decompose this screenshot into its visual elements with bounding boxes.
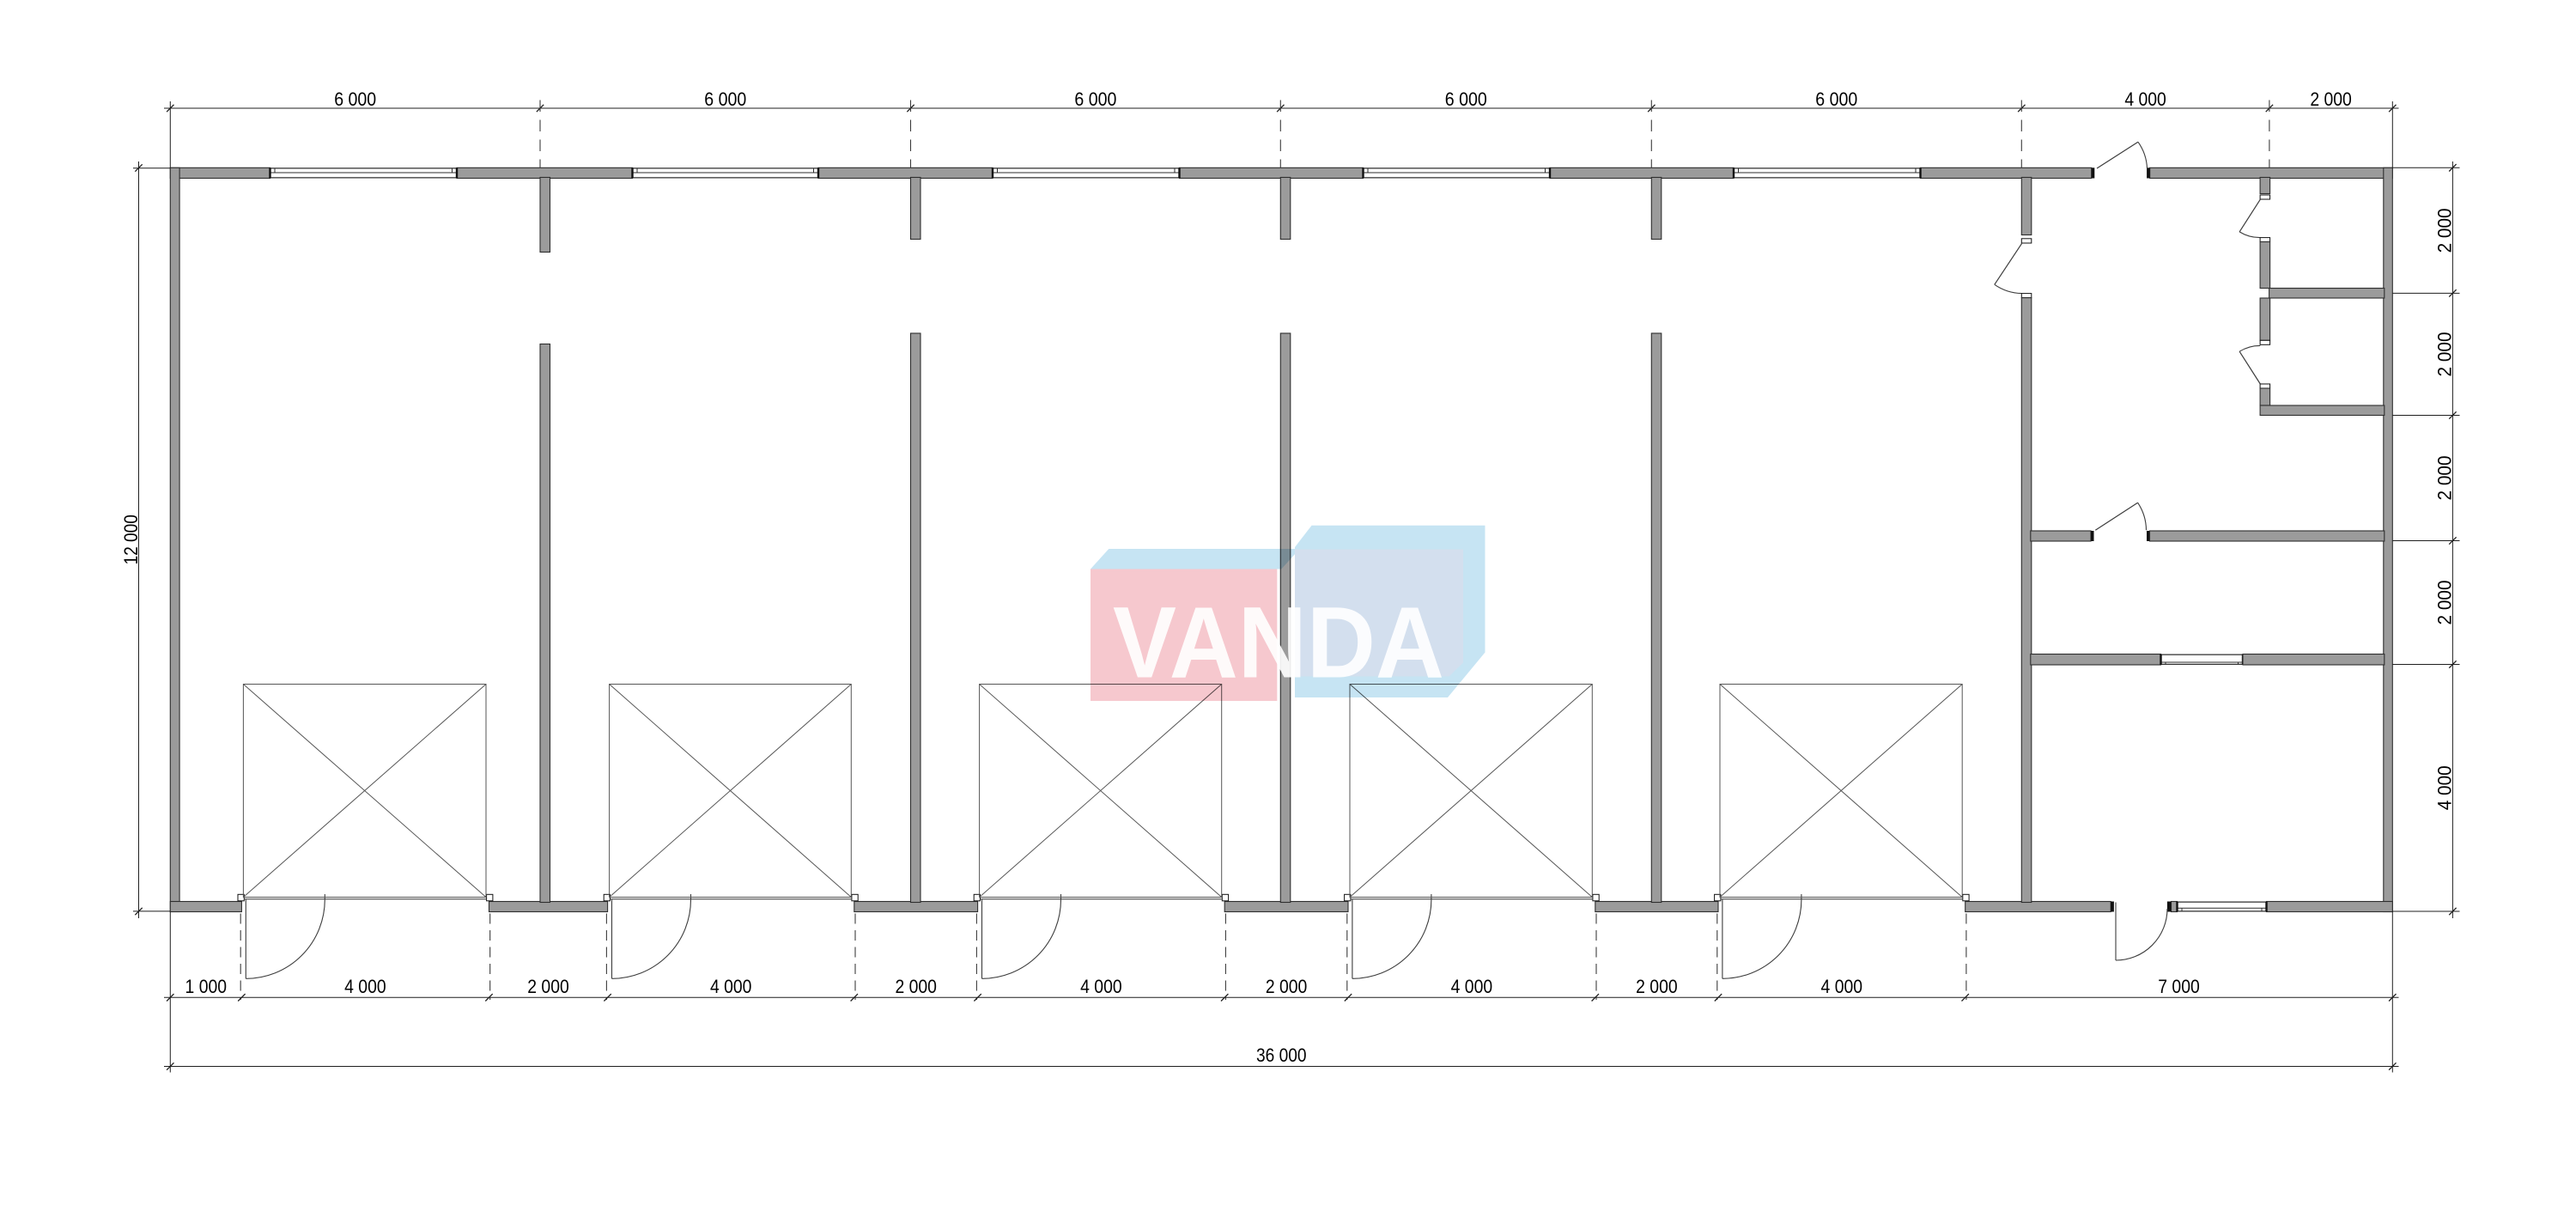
svg-text:6 000: 6 000	[1445, 88, 1487, 110]
svg-text:2 000: 2 000	[895, 976, 937, 997]
svg-text:6 000: 6 000	[1815, 88, 1857, 110]
svg-text:36 000: 36 000	[1256, 1044, 1307, 1066]
svg-text:4 000: 4 000	[1080, 976, 1122, 997]
svg-text:6 000: 6 000	[1074, 88, 1116, 110]
svg-text:6 000: 6 000	[704, 88, 746, 110]
svg-text:2 000: 2 000	[2434, 208, 2456, 253]
svg-text:2 000: 2 000	[527, 976, 569, 997]
svg-text:VANDA: VANDA	[1113, 587, 1444, 700]
svg-text:2 000: 2 000	[1266, 976, 1308, 997]
svg-text:2 000: 2 000	[1636, 976, 1678, 997]
svg-text:1 000: 1 000	[185, 976, 228, 997]
svg-text:12 000: 12 000	[120, 515, 142, 565]
svg-text:4 000: 4 000	[710, 976, 752, 997]
svg-text:2 000: 2 000	[2434, 332, 2456, 377]
svg-text:7 000: 7 000	[2158, 976, 2200, 997]
svg-text:4 000: 4 000	[344, 976, 386, 997]
svg-text:4 000: 4 000	[2124, 88, 2166, 110]
svg-text:2 000: 2 000	[2434, 581, 2456, 625]
svg-text:2 000: 2 000	[2434, 456, 2456, 501]
svg-text:4 000: 4 000	[1821, 976, 1863, 997]
svg-text:4 000: 4 000	[1451, 976, 1493, 997]
svg-text:2 000: 2 000	[2310, 88, 2352, 110]
svg-text:6 000: 6 000	[334, 88, 376, 110]
svg-text:4 000: 4 000	[2434, 765, 2456, 810]
